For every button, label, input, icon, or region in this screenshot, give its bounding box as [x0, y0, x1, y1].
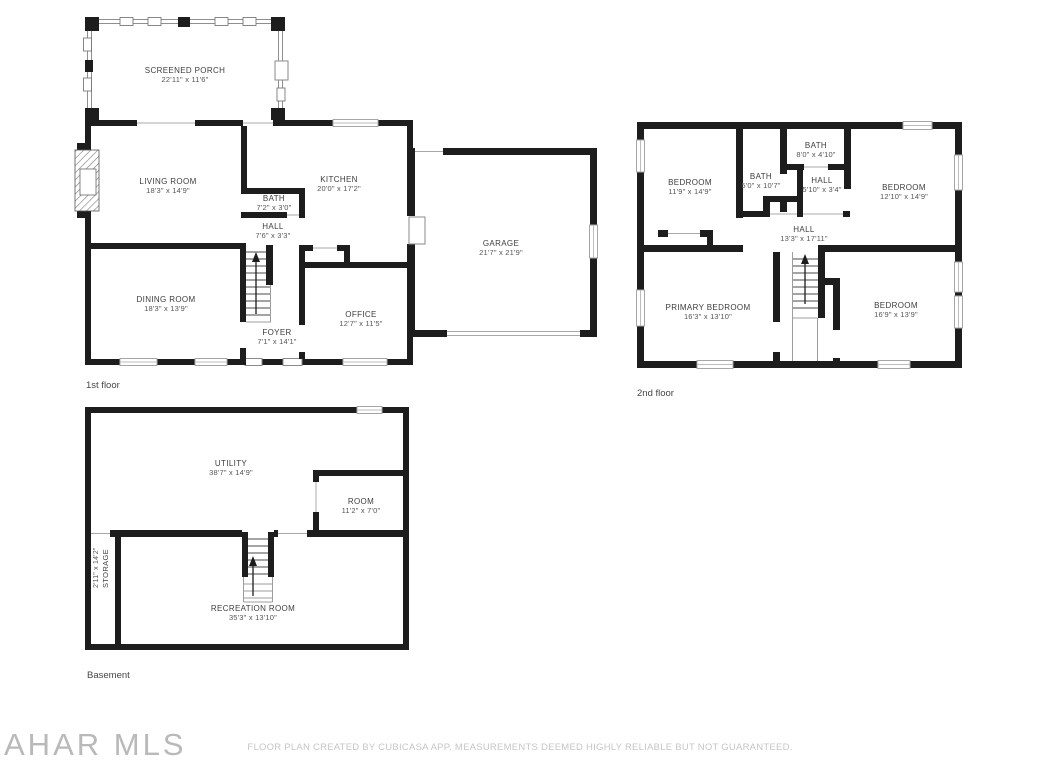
room-label-kitchen: KITCHEN 20'0" x 17'2" [317, 175, 361, 193]
room-label-utility: UTILITY 38'7" x 14'9" [209, 459, 253, 477]
room-label-bedroom-right: BEDROOM 12'10" x 14'9" [880, 183, 928, 201]
room-label-bedroom-bottom-right: BEDROOM 16'9" x 13'9" [874, 301, 918, 319]
room-label-room: ROOM 11'2" x 7'0" [342, 497, 381, 515]
room-label-living-room: LIVING ROOM 18'3" x 14'9" [139, 177, 196, 195]
room-label-hall-main: HALL 13'3" x 17'11" [780, 225, 828, 243]
caption-second-floor: 2nd floor [637, 388, 674, 399]
room-label-foyer: FOYER 7'1" x 14'1" [257, 328, 296, 346]
floorplan-drawing [0, 0, 1040, 780]
room-label-bath-inner: BATH 5'0" x 10'7" [741, 172, 780, 190]
room-label-office: OFFICE 12'7" x 11'5" [339, 310, 382, 328]
room-label-hall-small: HALL 5'10" x 3'4" [802, 176, 841, 194]
caption-first-floor: 1st floor [86, 380, 120, 391]
room-label-primary-bedroom: PRIMARY BEDROOM 16'3" x 13'10" [666, 303, 751, 321]
floorplan-page: SCREENED PORCH 22'11" x 11'6" LIVING ROO… [0, 0, 1040, 780]
room-label-hall-first: HALL 7'6" x 3'3" [256, 222, 291, 240]
disclaimer-text: FLOOR PLAN CREATED BY CUBICASA APP. MEAS… [0, 742, 1040, 753]
room-label-garage: GARAGE 21'7" x 21'9" [479, 239, 523, 257]
room-label-recreation-room: RECREATION ROOM 35'3" x 13'10" [211, 604, 295, 622]
room-label-bedroom-left: BEDROOM 11'9" x 14'9" [668, 178, 712, 196]
room-label-dining-room: DINING ROOM 18'3" x 13'9" [137, 295, 196, 313]
caption-basement: Basement [87, 670, 130, 681]
room-label-bath-first: BATH 7'2" x 3'0" [257, 194, 292, 212]
room-label-screened-porch: SCREENED PORCH 22'11" x 11'6" [145, 66, 225, 84]
room-label-bath-top: BATH 8'0" x 4'10" [796, 141, 835, 159]
